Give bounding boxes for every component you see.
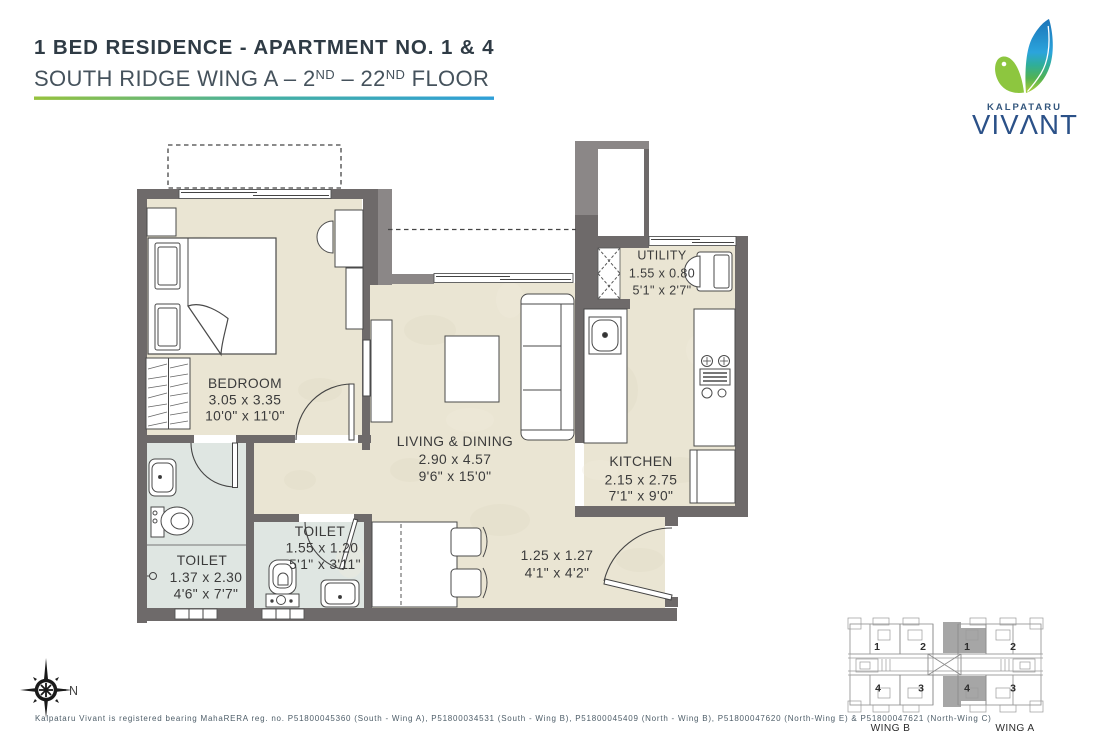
svg-text:TOILET: TOILET: [177, 553, 228, 568]
svg-text:1.25 x 1.27: 1.25 x 1.27: [521, 548, 594, 563]
svg-text:UTILITY: UTILITY: [637, 249, 687, 263]
svg-text:4: 4: [875, 683, 881, 695]
svg-text:3.05 x 3.35: 3.05 x 3.35: [209, 393, 282, 408]
svg-text:2: 2: [920, 641, 926, 653]
svg-text:N: N: [69, 684, 78, 698]
svg-text:TOILET: TOILET: [295, 524, 346, 539]
svg-text:WING B: WING B: [871, 723, 911, 734]
svg-text:VIVΛNT: VIVΛNT: [972, 109, 1078, 140]
svg-text:BEDROOM: BEDROOM: [208, 376, 282, 391]
svg-text:5'1" x 3'11": 5'1" x 3'11": [289, 557, 361, 572]
svg-text:5'1" x 2'7": 5'1" x 2'7": [632, 284, 691, 298]
svg-text:4'6" x 7'7": 4'6" x 7'7": [174, 587, 239, 602]
svg-text:1 BED RESIDENCE - APARTMENT NO: 1 BED RESIDENCE - APARTMENT NO. 1 & 4: [34, 36, 494, 59]
svg-text:Kalpataru Vivant is registered: Kalpataru Vivant is registered bearing M…: [35, 714, 992, 723]
svg-text:4'1" x 4'2": 4'1" x 4'2": [525, 566, 590, 581]
svg-text:9'6" x 15'0": 9'6" x 15'0": [419, 469, 492, 484]
svg-text:SOUTH RIDGE WING A – 2ND – 22N: SOUTH RIDGE WING A – 2ND – 22ND FLOOR: [34, 66, 489, 91]
svg-text:3: 3: [918, 683, 924, 695]
svg-text:2.90 x 4.57: 2.90 x 4.57: [419, 452, 492, 467]
svg-text:1: 1: [964, 641, 970, 653]
svg-text:1: 1: [874, 641, 880, 653]
svg-text:3: 3: [1010, 683, 1016, 695]
svg-text:WING A: WING A: [995, 723, 1034, 734]
svg-text:LIVING & DINING: LIVING & DINING: [397, 434, 513, 449]
svg-text:10'0" x 11'0": 10'0" x 11'0": [205, 409, 285, 424]
svg-text:1.55 x 0.80: 1.55 x 0.80: [629, 267, 695, 281]
svg-text:2.15 x 2.75: 2.15 x 2.75: [605, 473, 678, 488]
svg-text:2: 2: [1010, 641, 1016, 653]
svg-text:4: 4: [964, 683, 970, 695]
svg-text:7'1" x 9'0": 7'1" x 9'0": [609, 489, 674, 504]
svg-text:1.55 x 1.20: 1.55 x 1.20: [286, 541, 359, 556]
svg-text:KITCHEN: KITCHEN: [609, 454, 672, 469]
svg-text:1.37 x 2.30: 1.37 x 2.30: [170, 570, 243, 585]
